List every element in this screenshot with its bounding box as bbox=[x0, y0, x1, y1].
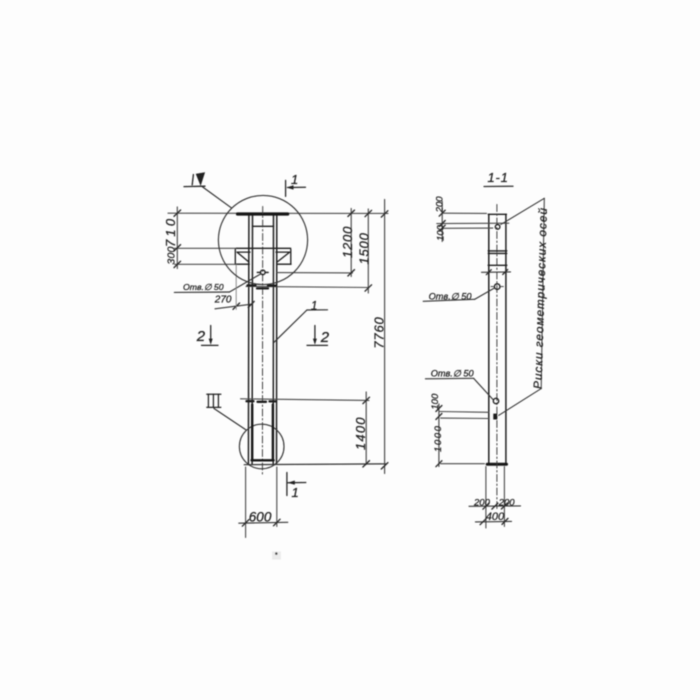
svg-text:100: 100 bbox=[436, 224, 447, 241]
svg-text:2: 2 bbox=[320, 329, 330, 346]
svg-text:1: 1 bbox=[291, 172, 298, 187]
svg-text:1000: 1000 bbox=[433, 424, 444, 452]
svg-text:270: 270 bbox=[214, 295, 232, 306]
svg-text:200: 200 bbox=[434, 196, 445, 214]
svg-text:2: 2 bbox=[196, 328, 206, 345]
svg-text:1: 1 bbox=[292, 485, 299, 500]
svg-text:1: 1 bbox=[311, 301, 317, 313]
svg-text:Отв.∅ 50: Отв.∅ 50 bbox=[183, 282, 224, 292]
svg-text:7760: 7760 bbox=[371, 316, 386, 348]
svg-text:1200: 1200 bbox=[340, 226, 355, 258]
svg-text:600: 600 bbox=[249, 509, 272, 524]
svg-text:200: 200 bbox=[473, 497, 491, 508]
svg-text:1400: 1400 bbox=[353, 416, 368, 450]
svg-text:710: 710 bbox=[163, 216, 178, 247]
svg-text:Риски геометрических осей: Риски геометрических осей bbox=[532, 207, 550, 389]
svg-text:100: 100 bbox=[430, 393, 441, 410]
svg-text:Отв.∅ 50: Отв.∅ 50 bbox=[431, 368, 475, 378]
svg-text:1-1: 1-1 bbox=[488, 170, 509, 185]
svg-text:200: 200 bbox=[498, 497, 516, 508]
svg-text:300: 300 bbox=[166, 246, 178, 264]
svg-text:1500: 1500 bbox=[357, 232, 372, 264]
svg-text:400: 400 bbox=[486, 511, 505, 523]
